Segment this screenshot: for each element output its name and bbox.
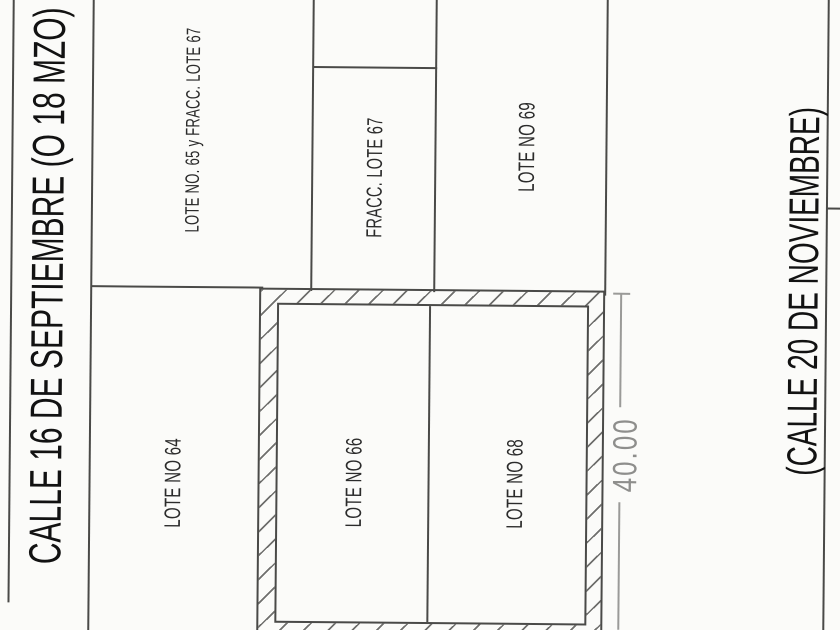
street-label-right: (CALLE 20 DE NOVIEMBRE) [782,107,827,476]
fracc67-east-boundary-line [433,0,438,292]
lot-label-69: LOTE NO 69 [516,102,539,192]
street-left-inner-line [87,0,95,630]
plat-drawing: CALLE 16 DE SEPTIEMBRE (O 18 MZO) (CALLE… [0,0,840,630]
street-label-left: CALLE 16 DE SEPTIEMBRE (O 18 MZO) [24,7,74,564]
hatched-block-interior [274,303,589,626]
lot69-east-boundary-line [604,0,609,296]
lot-label-66: LOTE NO 66 [343,437,366,527]
lot-label-65-fracc67: LOTE NO. 65 y FRACC. LOTE 67 [182,27,203,232]
fracc67-north-boundary-line [313,66,437,69]
lot64-north-boundary-line [91,285,263,289]
dimension-label-40: 40.00 [605,407,645,502]
street-right-tick-line [827,208,840,210]
street-left-outer-line [7,0,14,602]
lot-label-64: LOTE NO 64 [162,438,185,528]
plat-sheet: CALLE 16 DE SEPTIEMBRE (O 18 MZO) (CALLE… [0,0,840,630]
dimension-top-tick [613,293,630,295]
lot-label-68: LOTE NO 68 [504,439,527,529]
lot65-east-boundary-line [310,0,315,291]
lot-label-fracc67: FRACC. LOTE 67 [365,117,388,237]
